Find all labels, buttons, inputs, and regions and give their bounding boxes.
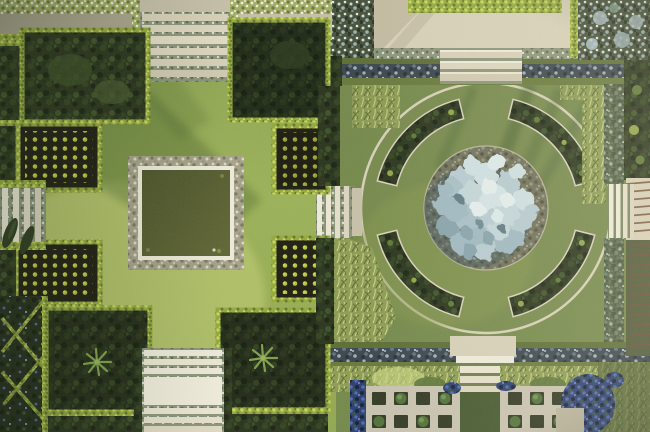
garden-aerial-photo — [0, 0, 650, 432]
garden-aerial-photo-svg — [0, 0, 650, 432]
photo-grain-overlay — [0, 0, 650, 432]
